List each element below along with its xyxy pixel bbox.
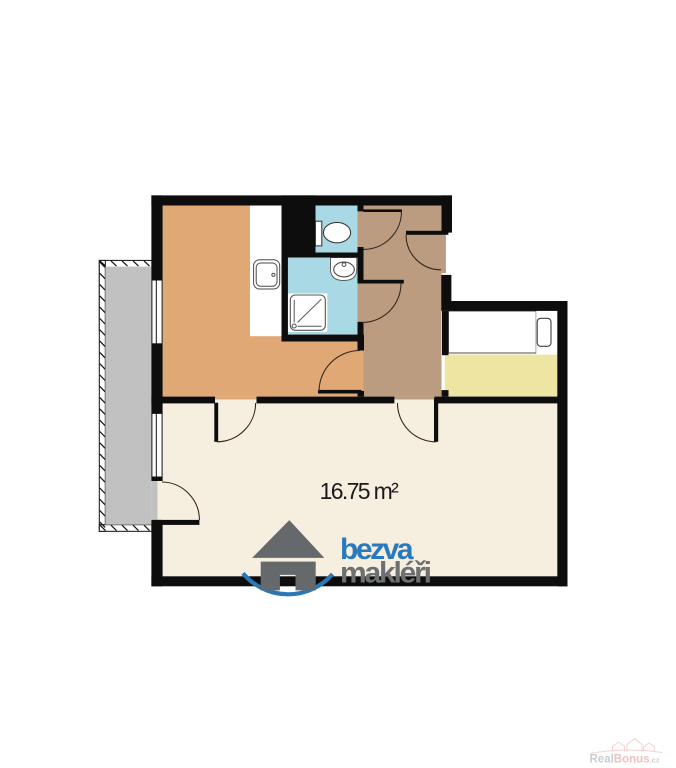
svg-text:makléři: makléři xyxy=(340,557,432,590)
svg-text:16.75 m²: 16.75 m² xyxy=(320,478,400,504)
svg-text:RealBonus.cz: RealBonus.cz xyxy=(590,754,660,766)
